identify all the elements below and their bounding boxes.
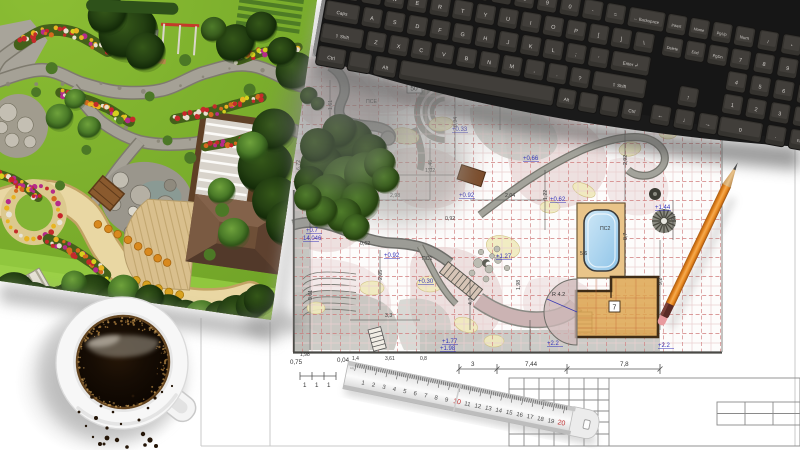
svg-text:9,2: 9,2 <box>658 278 664 285</box>
svg-text:3,61: 3,61 <box>385 356 395 362</box>
svg-text:+2.2: +2.2 <box>658 343 671 349</box>
svg-text:8,7: 8,7 <box>623 233 629 240</box>
svg-text:2,7: 2,7 <box>671 213 677 220</box>
svg-text:ПС2: ПС2 <box>600 226 610 232</box>
svg-text:1: 1 <box>327 382 331 389</box>
svg-text:0,92: 0,92 <box>445 216 455 222</box>
svg-text:+2.2: +2.2 <box>547 341 560 347</box>
svg-text:3: 3 <box>471 361 475 368</box>
svg-text:+0.66: +0.66 <box>523 156 539 162</box>
svg-text:1: 1 <box>315 382 319 389</box>
svg-text:1,22: 1,22 <box>543 190 549 200</box>
svg-text:0,04: 0,04 <box>337 357 350 364</box>
svg-text:R 4.2: R 4.2 <box>552 292 565 298</box>
svg-text:7,44: 7,44 <box>525 361 538 368</box>
svg-text:0,8: 0,8 <box>420 356 427 362</box>
svg-text:0,75: 0,75 <box>290 359 303 366</box>
svg-text:0,62: 0,62 <box>360 241 370 247</box>
svg-text:4,3: 4,3 <box>468 298 474 305</box>
svg-text:+0.62: +0.62 <box>550 197 566 203</box>
svg-text:+0.30: +0.30 <box>418 279 434 285</box>
svg-text:+1.27: +1.27 <box>496 254 512 260</box>
svg-text:ПС1: ПС1 <box>422 256 432 262</box>
svg-text:+1.98: +1.98 <box>440 346 456 352</box>
svg-text:5,6: 5,6 <box>580 251 587 257</box>
svg-text:2,04: 2,04 <box>505 193 515 199</box>
svg-text:←: ← <box>657 113 664 120</box>
svg-text:+1.77: +1.77 <box>442 339 458 345</box>
svg-text:14.046: 14.046 <box>303 236 322 242</box>
svg-text:En: En <box>796 138 800 144</box>
svg-text:+0.7: +0.7 <box>306 228 319 234</box>
svg-text:+0.92: +0.92 <box>459 193 475 199</box>
svg-text:7: 7 <box>613 305 617 312</box>
svg-text:7,8: 7,8 <box>620 361 629 368</box>
svg-text:2,05: 2,05 <box>378 270 384 280</box>
svg-text:1,4: 1,4 <box>352 356 359 362</box>
svg-text:1,98: 1,98 <box>300 352 310 358</box>
svg-text:2,92: 2,92 <box>623 155 629 165</box>
svg-text:3,3: 3,3 <box>385 313 392 319</box>
svg-text:+0.92: +0.92 <box>384 253 400 259</box>
svg-text:3,61: 3,61 <box>308 290 314 300</box>
svg-text:1: 1 <box>303 382 307 389</box>
svg-text:1,98: 1,98 <box>516 280 522 290</box>
svg-text:+1.44: +1.44 <box>655 205 671 211</box>
svg-text:→: → <box>704 122 711 129</box>
